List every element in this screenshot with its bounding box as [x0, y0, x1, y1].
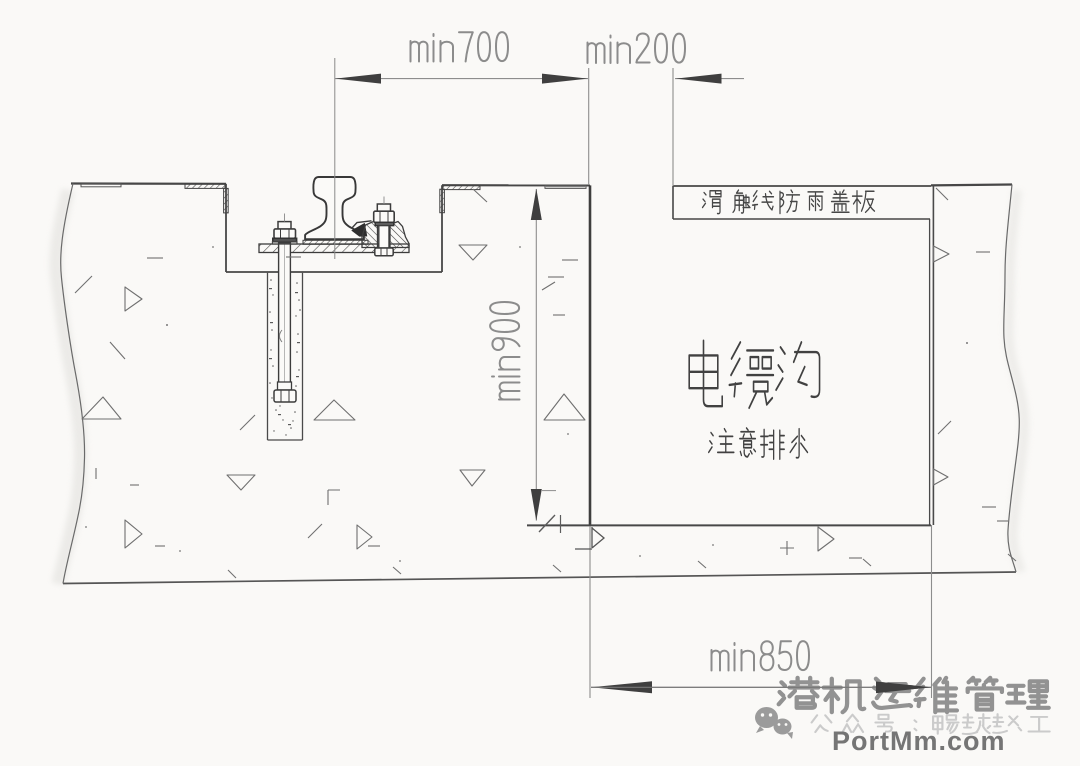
svg-text:PortMm.com: PortMm.com: [832, 726, 1006, 756]
